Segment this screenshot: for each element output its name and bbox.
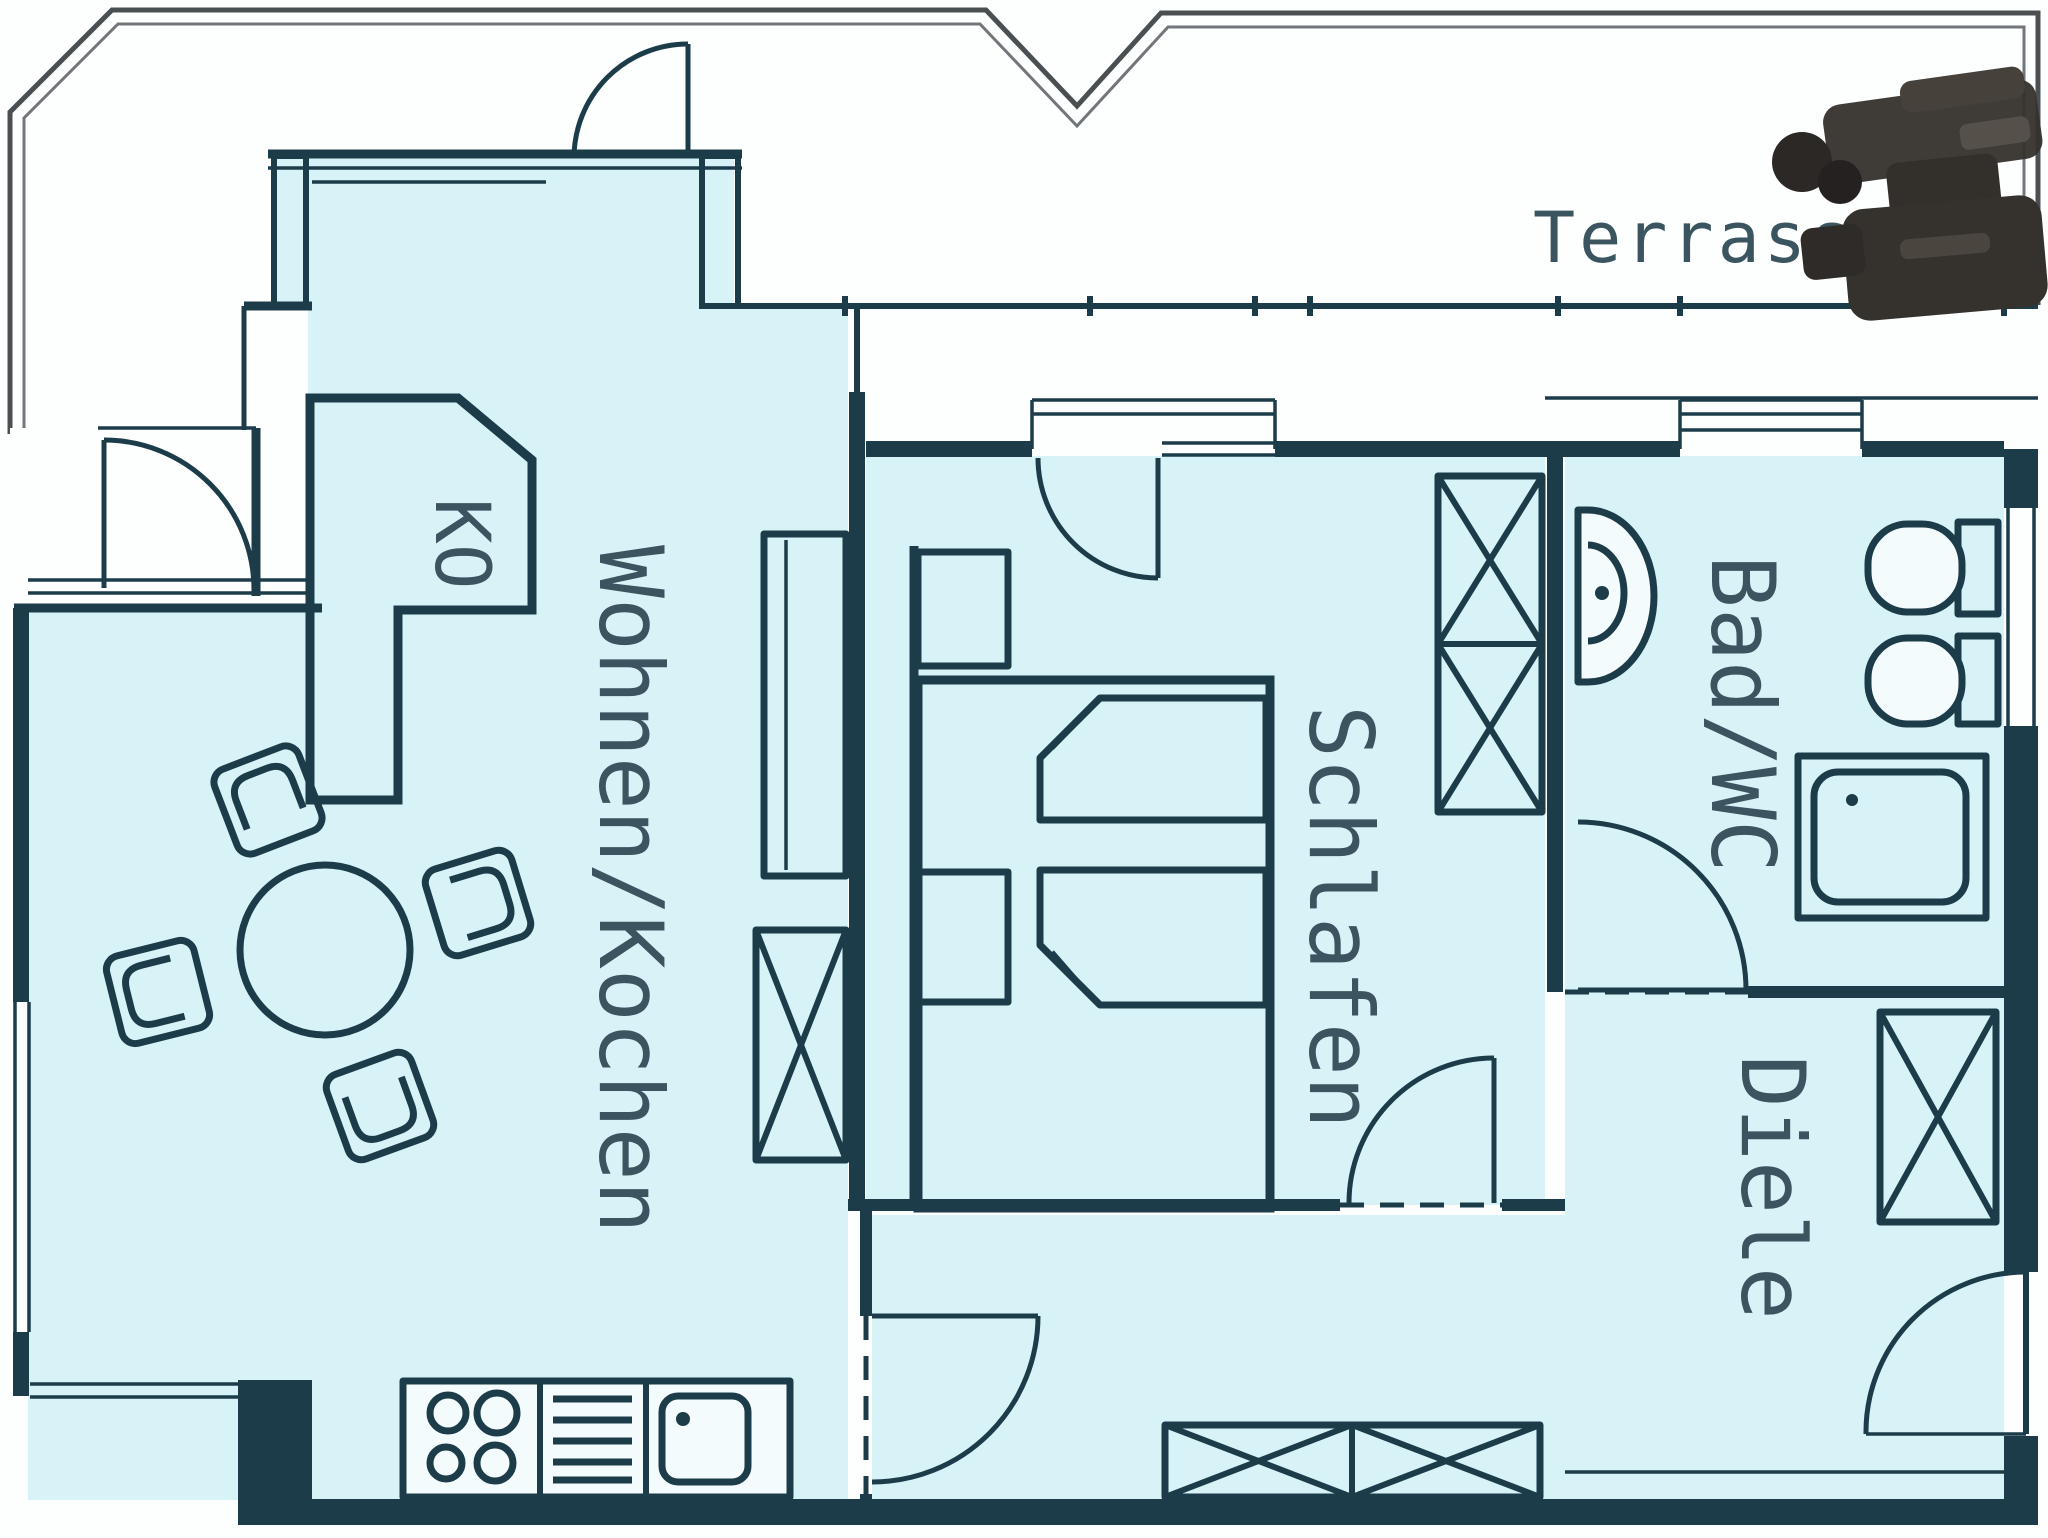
floorplan-page: Terrasse Wohnen/Kochen Schlafen Bad/WC D… bbox=[0, 0, 2048, 1538]
bedroom-floor bbox=[866, 456, 1545, 1205]
label-schlafen: Schlafen bbox=[1289, 705, 1392, 1129]
label-bad-wc: Bad/WC bbox=[1691, 555, 1794, 873]
floorplan-drawing: Terrasse Wohnen/Kochen Schlafen Bad/WC D… bbox=[0, 0, 2048, 1538]
wall-pier bbox=[238, 1380, 312, 1516]
label-diele: Diele bbox=[1721, 1055, 1824, 1320]
bay-window-floor bbox=[276, 158, 734, 306]
vestibule-floor bbox=[10, 428, 256, 600]
living-main-floor bbox=[28, 612, 848, 1500]
label-ko: KO bbox=[418, 498, 507, 590]
kitchen-counter bbox=[403, 1381, 790, 1497]
label-wohnen-kochen: Wohnen/Kochen bbox=[579, 545, 682, 1234]
